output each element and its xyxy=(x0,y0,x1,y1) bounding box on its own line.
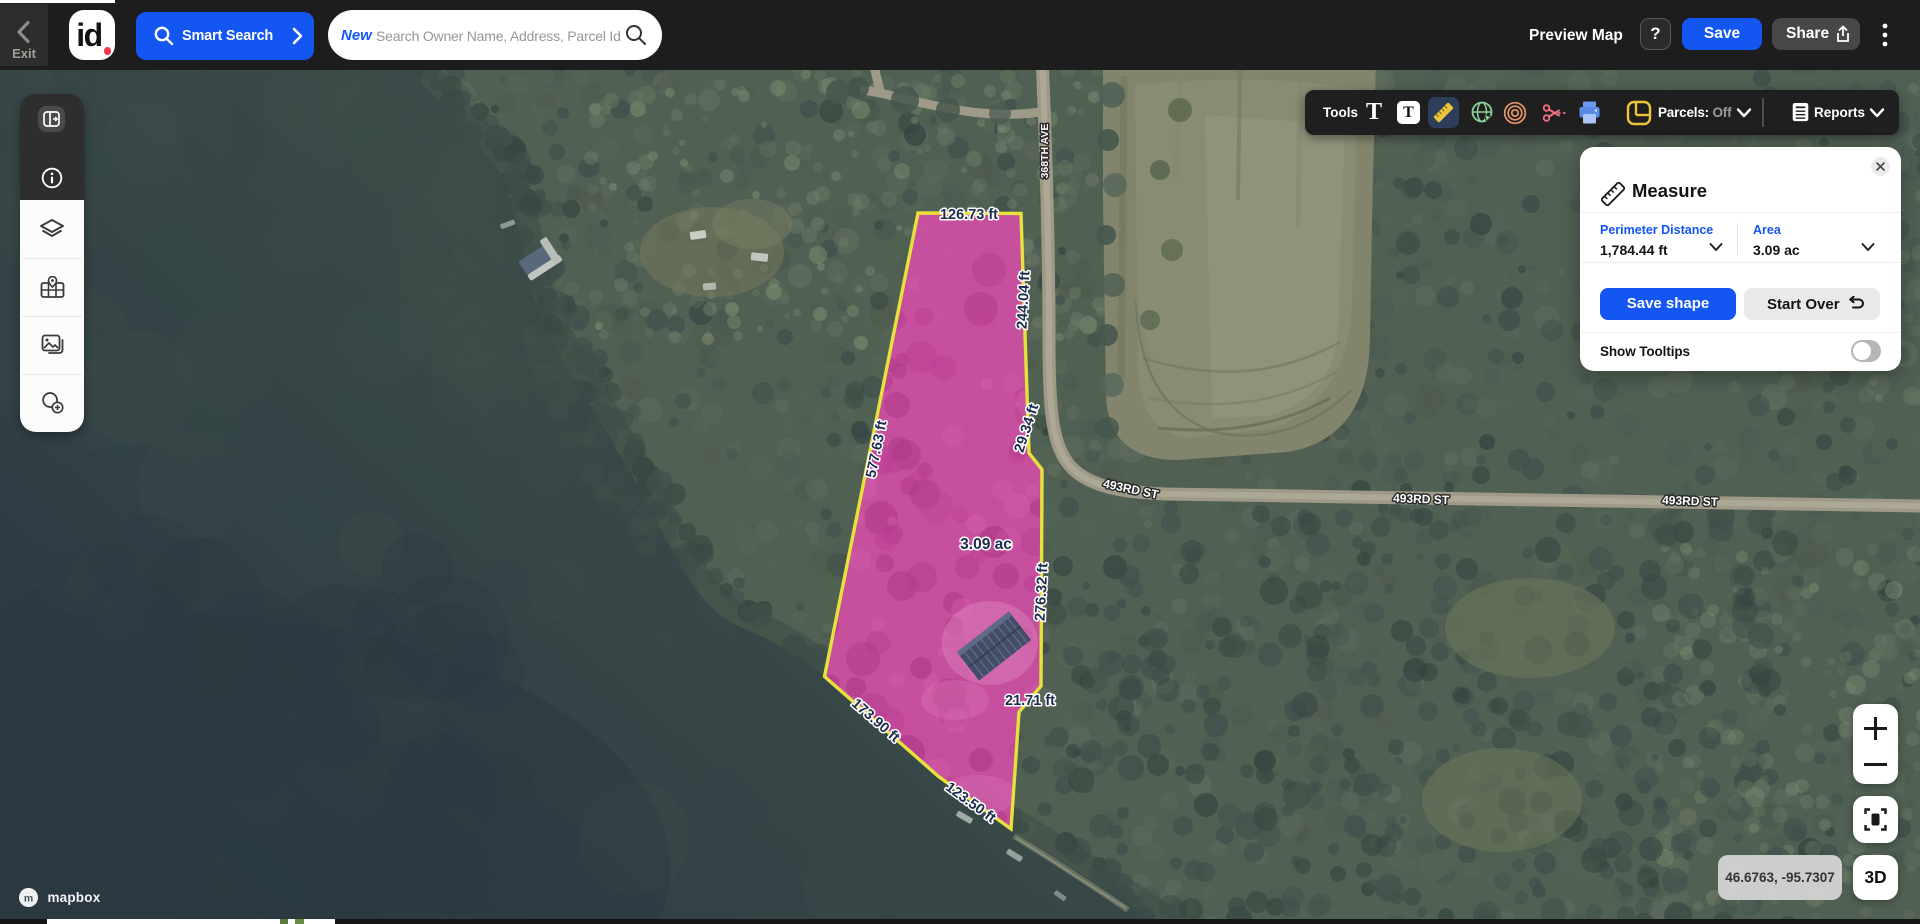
svg-text:493RD ST: 493RD ST xyxy=(1393,491,1450,507)
svg-text:126.73 ft: 126.73 ft xyxy=(940,207,998,223)
svg-text:493RD ST: 493RD ST xyxy=(1662,493,1719,509)
svg-text:244.04 ft: 244.04 ft xyxy=(1014,270,1033,329)
svg-text:m: m xyxy=(24,893,33,905)
svg-text:276.32 ft: 276.32 ft xyxy=(1032,562,1051,621)
svg-text:368TH AVE: 368TH AVE xyxy=(1039,124,1051,179)
svg-text:3.09 ac: 3.09 ac xyxy=(960,536,1012,553)
svg-text:21.71 ft: 21.71 ft xyxy=(1005,693,1055,709)
